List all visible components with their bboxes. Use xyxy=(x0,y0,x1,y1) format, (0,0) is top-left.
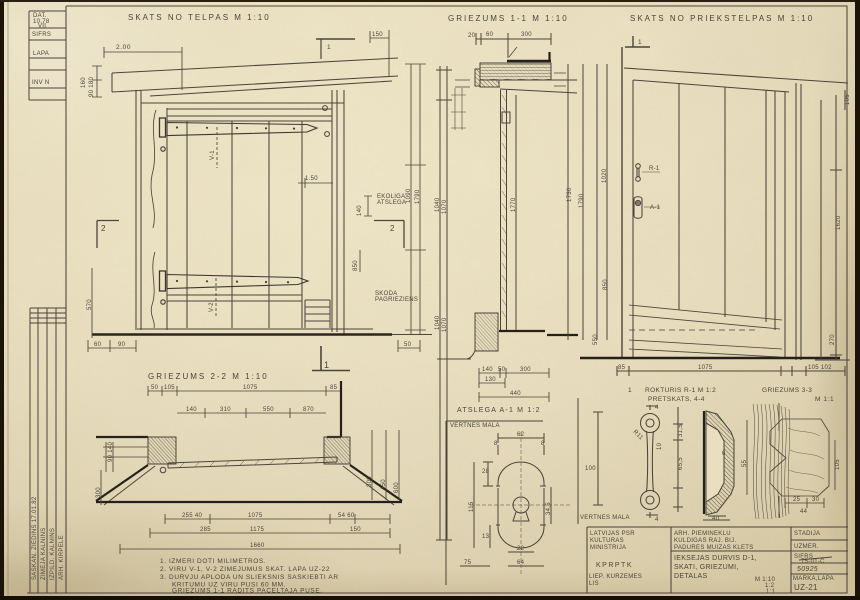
svg-text:ARH. PIEMINEKLU: ARH. PIEMINEKLU xyxy=(674,531,731,537)
svg-text:KULDIGAS RAJ. BIJ.: KULDIGAS RAJ. BIJ. xyxy=(674,538,736,544)
svg-text:1730: 1730 xyxy=(567,187,573,202)
svg-text:GRIEZUMS 2-2 M 1:10: GRIEZUMS 2-2 M 1:10 xyxy=(148,372,269,381)
svg-text:2. VIRU V-1, V-2 ZIMEJUMUS SKA: 2. VIRU V-1, V-2 ZIMEJUMUS SKAT. LAPA UZ… xyxy=(160,566,330,573)
svg-text:2.00: 2.00 xyxy=(116,44,131,51)
svg-text:KULTURAS: KULTURAS xyxy=(590,538,624,544)
svg-text:GRIEZUMS 3-3: GRIEZUMS 3-3 xyxy=(762,387,812,394)
svg-text:55: 55 xyxy=(742,459,748,467)
svg-text:310: 310 xyxy=(220,407,231,413)
svg-text:30: 30 xyxy=(812,497,820,503)
svg-text:MINISTRIJA: MINISTRIJA xyxy=(590,545,626,551)
svg-text:A-1: A-1 xyxy=(650,205,661,211)
svg-text:1075: 1075 xyxy=(243,385,258,391)
svg-text:105 102: 105 102 xyxy=(808,365,832,371)
svg-text:1175: 1175 xyxy=(250,527,264,533)
svg-text:60: 60 xyxy=(94,342,102,348)
svg-text:850: 850 xyxy=(353,260,359,271)
svg-text:100: 100 xyxy=(585,466,596,472)
svg-text:285: 285 xyxy=(200,527,211,533)
svg-text:PAGRIEZIENS: PAGRIEZIENS xyxy=(375,297,418,303)
svg-text:DETALAS: DETALAS xyxy=(674,573,708,580)
svg-text:300: 300 xyxy=(367,476,373,487)
svg-text:150: 150 xyxy=(372,32,383,38)
svg-text:8: 8 xyxy=(494,441,498,447)
svg-text:1070: 1070 xyxy=(442,199,448,214)
svg-text:50: 50 xyxy=(151,385,159,391)
svg-text:150: 150 xyxy=(350,527,361,533)
svg-text:850: 850 xyxy=(603,279,609,290)
svg-text:1770: 1770 xyxy=(511,197,517,212)
svg-text:R-1: R-1 xyxy=(649,166,660,172)
svg-text:1660: 1660 xyxy=(250,543,265,549)
svg-text:40: 40 xyxy=(712,516,720,522)
svg-text:1040: 1040 xyxy=(435,197,441,212)
svg-text:SKATS NO PRIEKSTELPAS M 1:10: SKATS NO PRIEKSTELPAS M 1:10 xyxy=(630,14,814,23)
svg-text:SIFRS: SIFRS xyxy=(32,32,51,38)
svg-text:90: 90 xyxy=(118,342,126,348)
svg-text:IEKSEJAS DURVIS D-1,: IEKSEJAS DURVIS D-1, xyxy=(674,555,757,562)
svg-text:1040: 1040 xyxy=(435,315,441,330)
svg-text:65,5: 65,5 xyxy=(678,457,684,470)
svg-text:VERTNES MALA: VERTNES MALA xyxy=(580,515,630,521)
svg-text:1. IZMERI DOTI MILIMETROS.: 1. IZMERI DOTI MILIMETROS. xyxy=(160,558,266,565)
svg-text:50: 50 xyxy=(404,342,412,348)
svg-text:1: 1 xyxy=(324,360,329,370)
svg-text:25: 25 xyxy=(793,497,801,503)
svg-text:1:1: 1:1 xyxy=(766,589,776,595)
svg-text:1075: 1075 xyxy=(248,513,263,519)
svg-text:PRETSKATS, 4-4: PRETSKATS, 4-4 xyxy=(648,396,705,403)
svg-text:105: 105 xyxy=(845,94,851,105)
svg-text:2: 2 xyxy=(390,224,395,233)
svg-text:440: 440 xyxy=(510,391,521,397)
svg-text:LAPA: LAPA xyxy=(33,51,49,57)
svg-text:INV N: INV N xyxy=(32,80,50,86)
svg-text:1790: 1790 xyxy=(579,193,585,208)
svg-text:V-1: V-1 xyxy=(210,150,216,160)
svg-text:450: 450 xyxy=(381,479,387,490)
svg-text:115: 115 xyxy=(469,501,475,512)
svg-text:85: 85 xyxy=(330,385,338,391)
svg-text:54 60: 54 60 xyxy=(338,513,355,519)
svg-text:VERTNES MALA: VERTNES MALA xyxy=(450,423,500,429)
svg-text:6: 6 xyxy=(722,451,726,457)
svg-text:62: 62 xyxy=(517,432,525,438)
svg-text:60: 60 xyxy=(486,32,494,38)
svg-text:1: 1 xyxy=(638,39,642,46)
svg-text:550: 550 xyxy=(593,334,599,345)
svg-text:1075: 1075 xyxy=(698,365,713,371)
svg-text:140: 140 xyxy=(357,205,363,216)
svg-text:1020: 1020 xyxy=(602,168,608,183)
svg-text:300: 300 xyxy=(96,487,102,498)
svg-text:KPRPTK: KPRPTK xyxy=(596,562,633,569)
svg-text:IZPILD. KALNINS: IZPILD. KALNINS xyxy=(50,528,56,580)
svg-text:105: 105 xyxy=(835,459,841,470)
svg-text:10: 10 xyxy=(657,442,663,450)
svg-text:GRIEZUMS 1-1 RADITS PACELTAJA: GRIEZUMS 1-1 RADITS PACELTAJA PUSE. xyxy=(172,588,323,595)
svg-text:140: 140 xyxy=(186,407,197,413)
svg-text:V-2: V-2 xyxy=(209,302,215,312)
svg-text:3. DURVJU APLODA UN SLIEKSNIS: 3. DURVJU APLODA UN SLIEKSNIS SASKIEBTI … xyxy=(160,574,339,581)
svg-text:13: 13 xyxy=(482,534,490,540)
svg-text:75-01-C: 75-01-C xyxy=(801,559,825,565)
svg-text:22: 22 xyxy=(517,546,525,552)
svg-text:ATSLEGA: ATSLEGA xyxy=(377,200,406,206)
svg-text:ROKTURIS R-1 M 1:2: ROKTURIS R-1 M 1:2 xyxy=(645,387,716,394)
svg-text:90 140: 90 140 xyxy=(108,441,114,462)
svg-text:PADURES MUIZAS KLETS: PADURES MUIZAS KLETS xyxy=(674,545,754,551)
svg-text:570: 570 xyxy=(87,299,93,310)
svg-text:1090: 1090 xyxy=(406,188,412,203)
svg-text:SASKAN. ZIEDINS 17.01.82: SASKAN. ZIEDINS 17.01.82 xyxy=(32,496,38,580)
svg-text:1: 1 xyxy=(327,44,331,51)
svg-text:UZMER.: UZMER. xyxy=(794,544,819,550)
svg-text:90 180: 90 180 xyxy=(89,76,95,97)
svg-text:300: 300 xyxy=(521,32,532,38)
svg-text:28: 28 xyxy=(482,469,490,475)
svg-text:SKATS NO TELPAS M 1:10: SKATS NO TELPAS M 1:10 xyxy=(128,13,271,22)
svg-text:31,5: 31,5 xyxy=(678,424,684,437)
svg-text:50925: 50925 xyxy=(797,566,818,573)
svg-text:4: 4 xyxy=(655,517,659,523)
svg-text:1070: 1070 xyxy=(442,317,448,332)
svg-text:STADIJA: STADIJA xyxy=(794,531,820,537)
svg-text:MARKA,LAPA: MARKA,LAPA xyxy=(793,576,834,582)
svg-text:SKATI, GRIEZUMI,: SKATI, GRIEZUMI, xyxy=(674,564,739,571)
svg-text:1.50: 1.50 xyxy=(305,176,318,182)
svg-text:GRIEZUMS 1-1 M 1:10: GRIEZUMS 1-1 M 1:10 xyxy=(448,14,569,23)
svg-text:50: 50 xyxy=(498,367,506,373)
svg-text:1790: 1790 xyxy=(415,189,421,204)
svg-text:20: 20 xyxy=(468,33,476,39)
svg-text:300: 300 xyxy=(520,367,531,373)
svg-text:44: 44 xyxy=(800,509,808,515)
svg-text:75: 75 xyxy=(464,560,472,566)
svg-text:140: 140 xyxy=(482,367,493,373)
svg-text:550: 550 xyxy=(263,407,274,413)
svg-text:2: 2 xyxy=(101,224,106,233)
svg-text:4: 4 xyxy=(655,405,659,411)
svg-text:VII: VII xyxy=(38,24,46,30)
svg-text:1: 1 xyxy=(628,387,632,394)
svg-text:270: 270 xyxy=(830,334,836,345)
svg-text:ATSLEGA A-1 M 1:2: ATSLEGA A-1 M 1:2 xyxy=(457,407,541,414)
svg-text:LIEP. KURZEMES: LIEP. KURZEMES xyxy=(589,574,642,580)
svg-text:130: 130 xyxy=(485,377,496,383)
svg-text:160: 160 xyxy=(81,77,87,88)
svg-text:34,5: 34,5 xyxy=(546,502,552,515)
svg-text:255 40: 255 40 xyxy=(182,513,203,519)
svg-text:UZ-21: UZ-21 xyxy=(794,583,818,592)
svg-text:105: 105 xyxy=(164,385,175,391)
svg-text:8: 8 xyxy=(541,441,545,447)
svg-text:85: 85 xyxy=(618,365,626,371)
svg-text:600: 600 xyxy=(394,482,400,493)
svg-text:M 1:1: M 1:1 xyxy=(815,396,834,403)
svg-text:1620: 1620 xyxy=(836,215,842,230)
svg-text:ARH. KIRPELE: ARH. KIRPELE xyxy=(59,535,65,580)
svg-text:ZIMEJA KALNINS: ZIMEJA KALNINS xyxy=(41,527,47,580)
svg-text:LATVIJAS PSR: LATVIJAS PSR xyxy=(590,531,635,537)
svg-text:870: 870 xyxy=(303,407,314,413)
svg-text:LIS: LIS xyxy=(589,581,599,587)
svg-text:64: 64 xyxy=(517,560,525,566)
